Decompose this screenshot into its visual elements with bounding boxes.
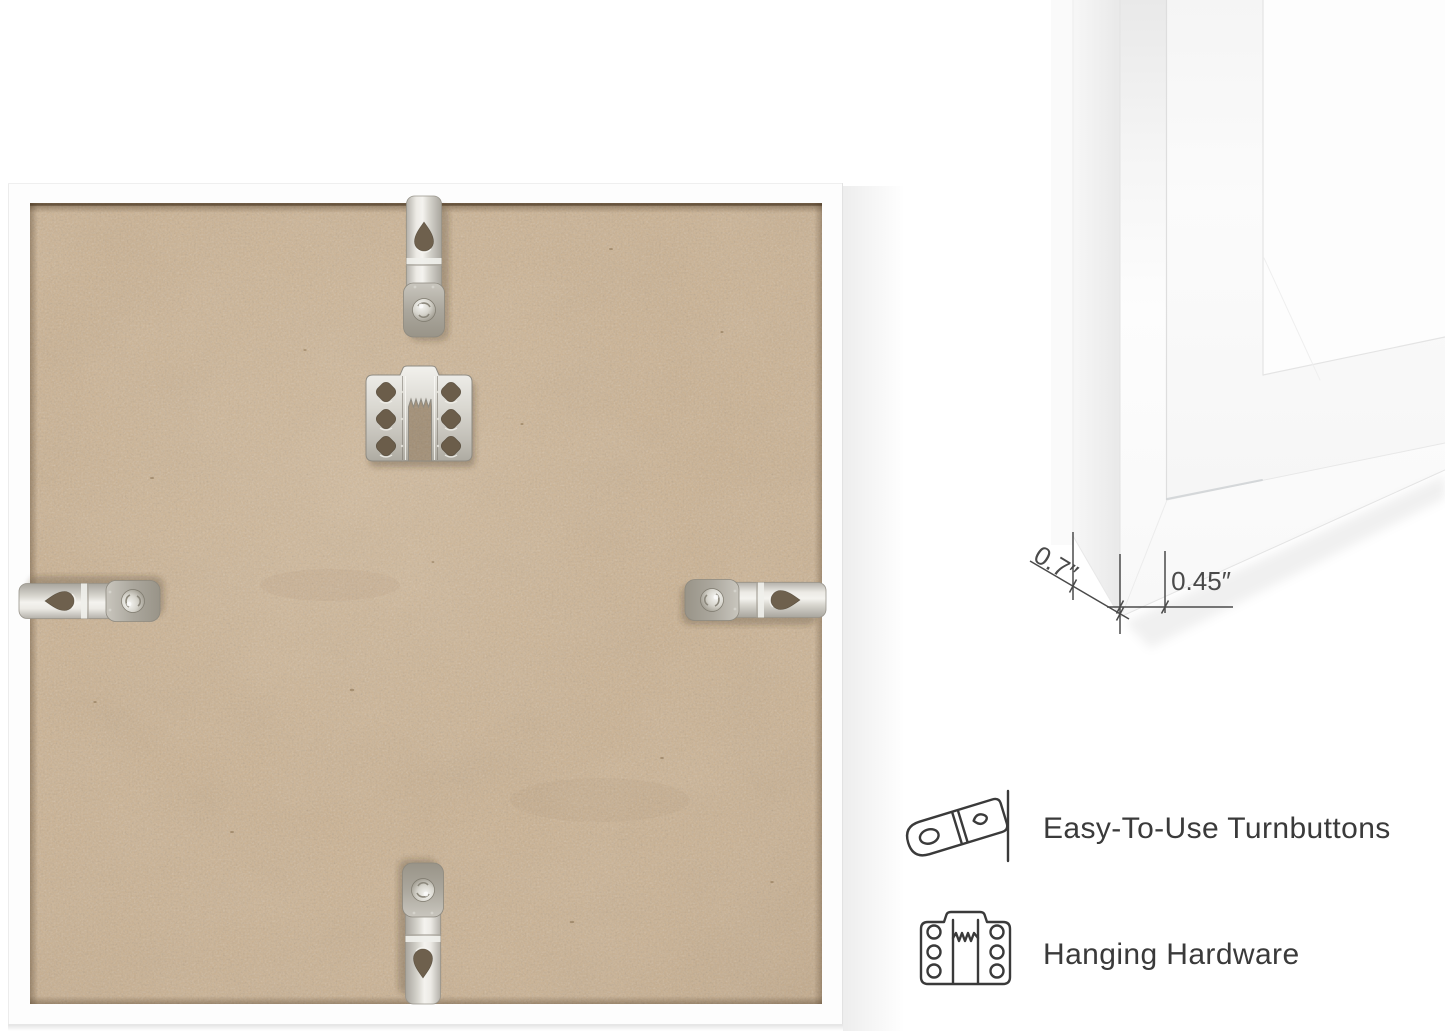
turnbutton-right	[681, 580, 826, 626]
sawtooth-hanger-icon	[921, 912, 1010, 984]
product-image: 0.7″ 0.45″ Easy-To-Use Turnbuttons Hangi…	[0, 0, 1445, 1031]
mat-opening-area	[1263, 0, 1445, 375]
sawtooth-hanger	[366, 366, 475, 467]
feature-row-turnbuttons: Easy-To-Use Turnbuttons	[903, 791, 1390, 861]
feature-label-turnbuttons: Easy-To-Use Turnbuttons	[1043, 812, 1391, 845]
turnbutton-bottom	[398, 859, 444, 1004]
frame-right-shadow	[843, 186, 905, 1031]
turnbutton-top	[404, 196, 450, 341]
frame-side-face	[1073, 0, 1120, 617]
scene-canvas: 0.7″ 0.45″ Easy-To-Use Turnbuttons Hangi…	[0, 0, 1445, 1031]
face-width-dimension-label: 0.45″	[1171, 566, 1231, 596]
frame-back-photo	[8, 183, 905, 1031]
frame-corner-detail-photo	[1051, 0, 1445, 648]
turnbutton-left	[19, 576, 164, 622]
turnbutton-icon	[903, 791, 1009, 861]
feature-row-hanging-hardware: Hanging Hardware	[921, 912, 1300, 984]
feature-label-hanging-hardware: Hanging Hardware	[1043, 938, 1300, 971]
frame-bottom-shadow	[8, 1025, 843, 1031]
